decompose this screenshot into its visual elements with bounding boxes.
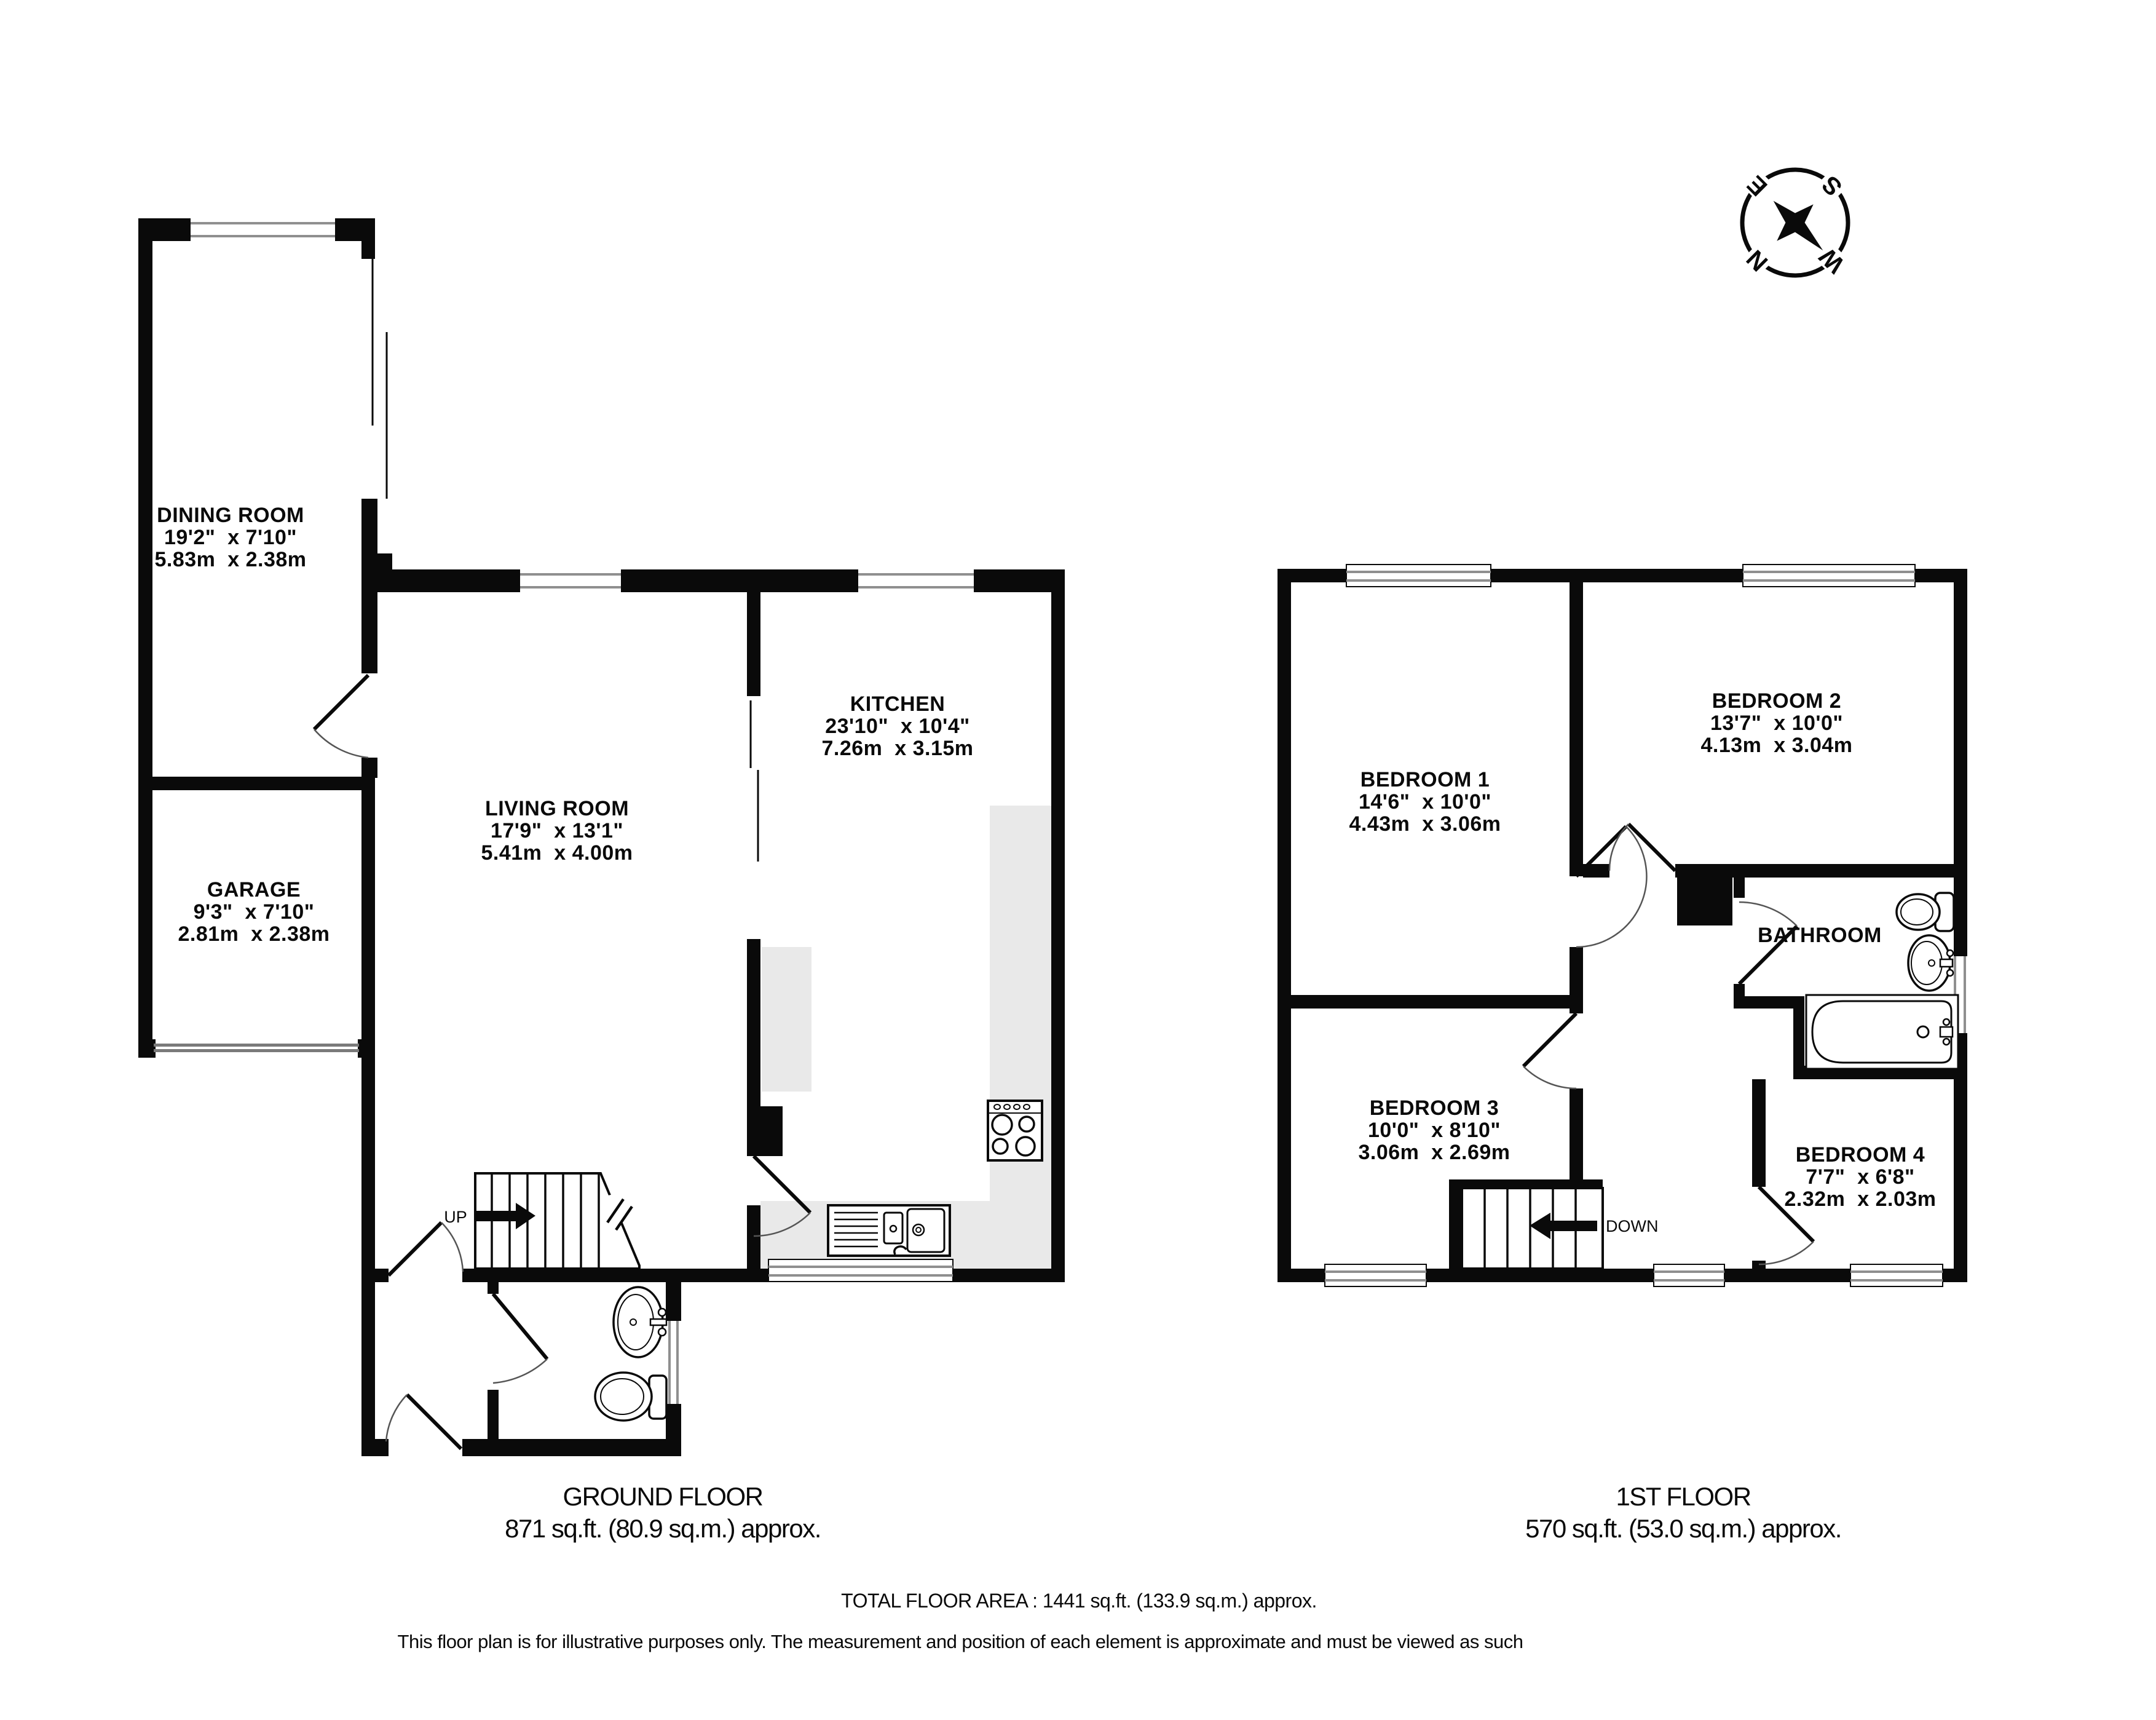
window-kitchen-top (858, 569, 974, 592)
garage-imperial: 9'3" x 7'10" (194, 900, 315, 924)
first-floor-plan: DOWN (1277, 565, 1971, 1286)
bedroom1-metric: 4.43m x 3.06m (1349, 812, 1501, 836)
window-kitchen-bottom (768, 1259, 953, 1282)
bathroom-name: BATHROOM (1758, 924, 1882, 947)
garage-metric: 2.81m x 2.38m (178, 922, 330, 946)
kitchen-counters (760, 806, 1051, 1269)
room-label-bedroom4: BEDROOM 4 7'7" x 6'8" 2.32m x 2.03m (1784, 1143, 1936, 1211)
compass-n: N (1742, 245, 1774, 277)
room-label-dining: DINING ROOM 19'2" x 7'10" 5.83m x 2.38m (154, 504, 306, 571)
total-floor-area: TOTAL FLOOR AREA : 1441 sq.ft. (133.9 sq… (841, 1590, 1317, 1612)
ground-floor-area: 871 sq.ft. (80.9 sq.m.) approx. (505, 1514, 821, 1543)
captions: GROUND FLOOR 871 sq.ft. (80.9 sq.m.) app… (398, 1482, 1841, 1652)
floor-plan-canvas: UP (0, 0, 2156, 1720)
door-dining (314, 675, 368, 758)
bathroom-sink-icon (1908, 935, 1953, 991)
counter-right (990, 806, 1051, 1269)
ground-floor-plan: UP (138, 218, 1065, 1456)
window-dining (191, 218, 335, 241)
staircase-up: UP (444, 1173, 646, 1269)
kitchen-name: KITCHEN (850, 692, 946, 716)
garage-door (154, 1044, 359, 1052)
dining-imperial: 19'2" x 7'10" (164, 526, 297, 549)
living-imperial: 17'9" x 13'1" (491, 819, 623, 842)
compass-rose: N S E W (1702, 130, 1887, 315)
garage-name: GARAGE (207, 878, 301, 902)
room-label-kitchen: KITCHEN 23'10" x 10'4" 7.26m x 3.15m (821, 692, 973, 760)
room-label-bedroom2: BEDROOM 2 13'7" x 10'0" 4.13m x 3.04m (1700, 689, 1852, 757)
bathroom-fixtures (1806, 893, 1958, 1069)
door-living (389, 1223, 463, 1275)
door-wc (493, 1294, 547, 1383)
bathroom-toilet-icon (1897, 893, 1954, 931)
window-bedroom2 (1743, 565, 1915, 587)
bathtub-icon (1806, 995, 1958, 1069)
window-living (520, 569, 621, 592)
bedroom4-metric: 2.32m x 2.03m (1784, 1187, 1936, 1211)
bedroom3-imperial: 10'0" x 8'10" (1368, 1119, 1501, 1142)
window-wc (666, 1321, 681, 1404)
hob-icon (988, 1101, 1042, 1160)
door-bedroom3 (1523, 1013, 1576, 1088)
bedroom2-name: BEDROOM 2 (1712, 689, 1841, 713)
wc-fixtures (595, 1287, 666, 1421)
bedroom4-name: BEDROOM 4 (1796, 1143, 1925, 1167)
wc-toilet-icon (595, 1373, 666, 1421)
stairs-down-label: DOWN (1606, 1217, 1658, 1235)
kitchen-sink-icon (828, 1205, 950, 1256)
living-name: LIVING ROOM (485, 797, 629, 820)
counter-left (762, 947, 811, 1092)
bedroom1-imperial: 14'6" x 10'0" (1359, 790, 1491, 814)
staircase-down: DOWN (1462, 1188, 1658, 1269)
window-bedroom3 (1325, 1264, 1426, 1286)
doors-ground-floor (314, 675, 810, 1449)
dining-name: DINING ROOM (157, 504, 304, 527)
bedroom3-metric: 3.06m x 2.69m (1358, 1141, 1510, 1164)
room-label-bedroom3: BEDROOM 3 10'0" x 8'10" 3.06m x 2.69m (1358, 1096, 1510, 1164)
bedroom4-imperial: 7'7" x 6'8" (1806, 1165, 1914, 1189)
ground-floor-caption: GROUND FLOOR (563, 1482, 762, 1511)
bedroom3-name: BEDROOM 3 (1370, 1096, 1499, 1120)
dining-metric: 5.83m x 2.38m (154, 548, 306, 571)
living-metric: 5.41m x 4.00m (481, 841, 633, 865)
bedroom2-metric: 4.13m x 3.04m (1700, 734, 1852, 757)
bedroom2-imperial: 13'7" x 10'0" (1710, 711, 1843, 735)
wc-sink-icon (614, 1287, 666, 1357)
window-landing (1654, 1264, 1724, 1286)
kitchen-imperial: 23'10" x 10'4" (825, 715, 970, 738)
room-label-garage: GARAGE 9'3" x 7'10" 2.81m x 2.38m (178, 878, 330, 946)
stairs-up-label: UP (444, 1208, 467, 1226)
room-label-living: LIVING ROOM 17'9" x 13'1" 5.41m x 4.00m (481, 797, 633, 865)
bedroom1-name: BEDROOM 1 (1360, 768, 1490, 791)
room-labels-first-floor: BEDROOM 1 14'6" x 10'0" 4.43m x 3.06m BE… (1349, 689, 1936, 1211)
thin-wall-lines (373, 259, 758, 862)
disclaimer-text: This floor plan is for illustrative purp… (398, 1631, 1523, 1652)
kitchen-metric: 7.26m x 3.15m (821, 737, 973, 760)
first-floor-caption: 1ST FLOOR (1616, 1482, 1750, 1511)
first-floor-area: 570 sq.ft. (53.0 sq.m.) approx. (1525, 1514, 1841, 1543)
door-bedroom1 (1576, 826, 1646, 947)
window-bedroom1 (1346, 565, 1491, 587)
window-bedroom4 (1850, 1264, 1943, 1286)
room-label-bedroom1: BEDROOM 1 14'6" x 10'0" 4.43m x 3.06m (1349, 768, 1501, 836)
door-front (386, 1395, 461, 1449)
